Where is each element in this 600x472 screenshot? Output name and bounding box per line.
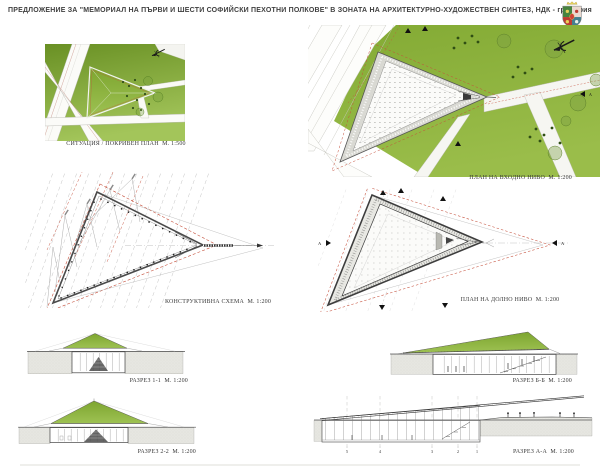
underground-hall — [50, 428, 128, 443]
underground-gallery — [322, 406, 480, 443]
underground-hall — [433, 354, 556, 374]
section-b-b-caption: РАЗРЕЗ Б-Б М. 1:200 — [498, 378, 572, 384]
green-roof — [35, 334, 175, 352]
green-roof — [396, 332, 560, 354]
section-a-a-caption: РАЗРЕЗ А-А М. 1:200 — [498, 449, 574, 455]
section-b-b-drawing — [388, 330, 580, 380]
section-2-2-drawing — [16, 398, 198, 448]
section-marker-label: А — [589, 92, 592, 97]
lower-plan-caption: ПЛАН НА ДОЛНО НИВО М. 1:200 — [452, 297, 568, 303]
section-1-1-caption: РАЗРЕЗ 1-1 М. 1:200 — [118, 378, 188, 384]
site-plan-panel — [45, 44, 185, 141]
site-plan-caption: СИТУАЦИЯ / ПОКРИВЕН ПЛАН М. 1:500 — [63, 141, 189, 147]
grid-label: 5 — [346, 449, 349, 454]
section-a-a-panel: 5 4 3 2 1 — [312, 392, 594, 454]
grid-labels: 5 4 3 2 1 — [346, 446, 478, 454]
lower-level-plan-drawing: А А — [318, 188, 583, 312]
construction-scheme-panel — [25, 172, 303, 308]
entry-plan-caption: ПЛАН НА ВХОДНО НИВО М. 1:200 — [428, 175, 572, 181]
section-marker-label-left: А — [318, 241, 322, 246]
green-roof — [24, 399, 184, 428]
building-walls — [328, 195, 494, 305]
site-plan-drawing — [45, 44, 185, 141]
section-b-b-panel — [388, 330, 580, 380]
section-2-2-caption: РАЗРЕЗ 2-2 М. 1:200 — [126, 449, 196, 455]
lower-level-plan-panel: А А — [318, 188, 583, 312]
grid-label: 4 — [379, 449, 382, 454]
board-title: ПРЕДЛОЖЕНИЕ ЗА "МЕМОРИАЛ НА ПЪРВИ И ШЕСТ… — [8, 7, 556, 14]
figures-on-ground — [507, 412, 574, 417]
grid-label: 3 — [431, 449, 434, 454]
construction-scheme-drawing — [25, 172, 303, 308]
entry-level-plan-drawing: А — [308, 25, 600, 177]
entry-level-plan-panel: А — [308, 25, 600, 177]
section-2-2-panel — [16, 398, 198, 448]
section-1-1-drawing — [25, 332, 187, 380]
grid-label: 2 — [457, 449, 459, 454]
section-marker-label-right: А — [561, 241, 565, 246]
board-bottom-edge — [20, 464, 580, 466]
presentation-board: ПРЕДЛОЖЕНИЕ ЗА "МЕМОРИАЛ НА ПЪРВИ И ШЕСТ… — [0, 0, 600, 472]
underground-hall — [72, 352, 125, 373]
section-a-a-drawing: 5 4 3 2 1 — [312, 392, 594, 454]
grid-label: 1 — [476, 449, 478, 454]
section-1-1-panel — [25, 332, 187, 380]
construction-scheme-caption: КОНСТРУКТИВНА СХЕМА М. 1:200 — [158, 299, 278, 305]
